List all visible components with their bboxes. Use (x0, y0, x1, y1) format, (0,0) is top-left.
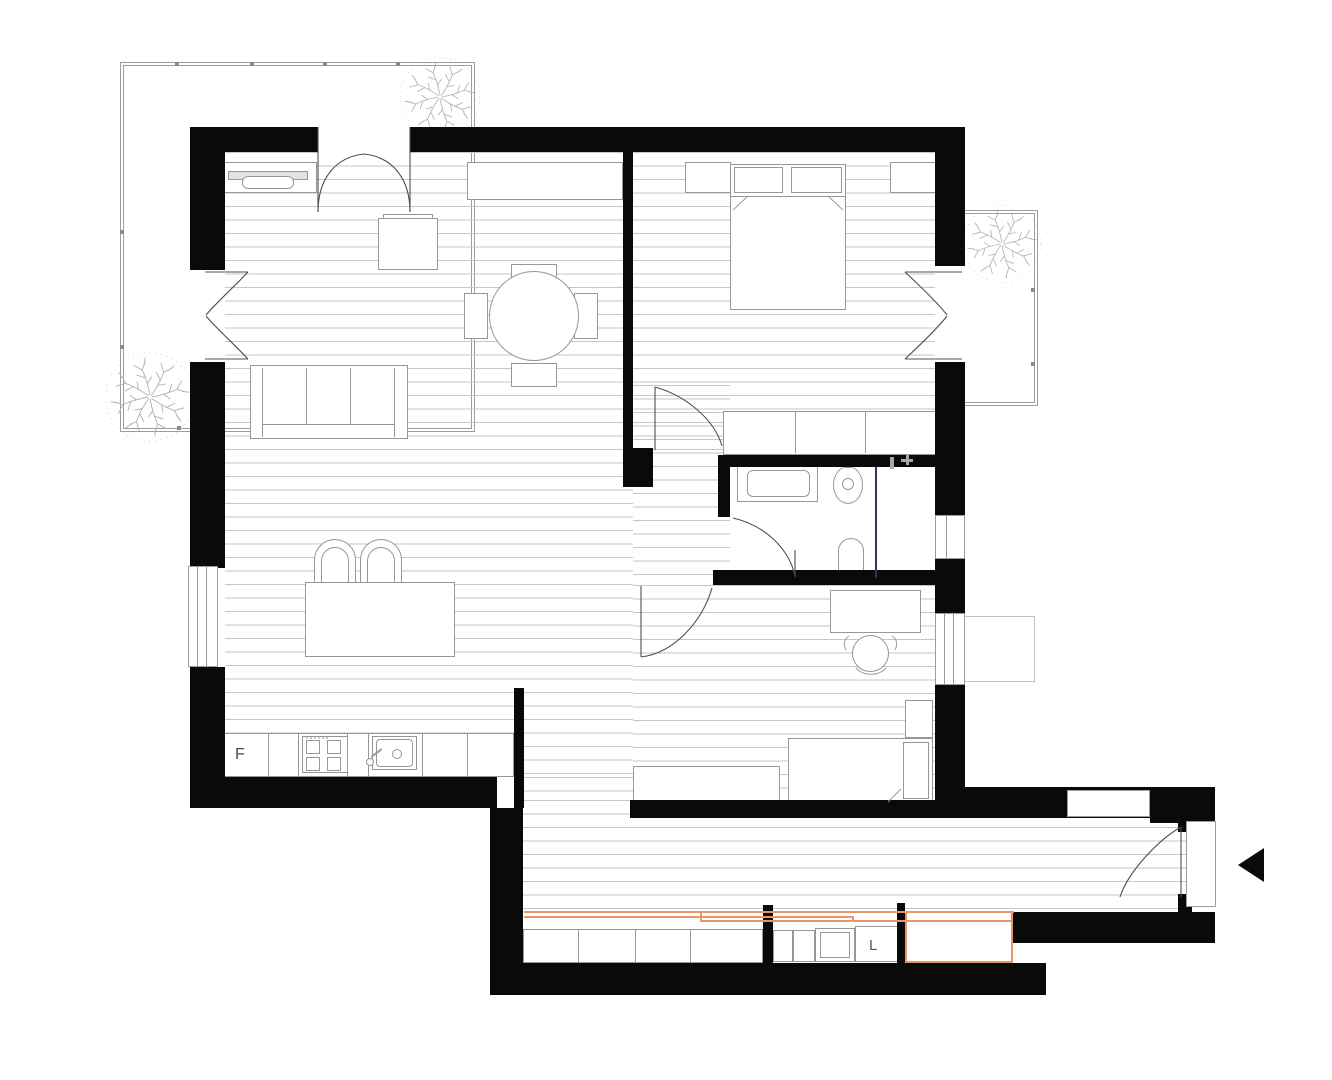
shower-tap (890, 457, 894, 469)
railing-post (1031, 362, 1035, 366)
nightstand (685, 162, 731, 193)
sideboard (467, 162, 623, 200)
wall (1013, 912, 1215, 943)
wall (190, 667, 225, 779)
window (935, 613, 965, 685)
bedside-cabinet (905, 700, 933, 738)
sliding-door-track (524, 916, 854, 918)
counter-divider (368, 734, 369, 776)
stove-burner (327, 740, 341, 754)
tree-icon (100, 347, 200, 447)
floor-passage (523, 777, 633, 802)
window-sill-line (965, 681, 1035, 682)
pillow (734, 167, 783, 193)
utility-cabinet (793, 930, 815, 962)
counter-divider (298, 734, 299, 776)
wall (190, 127, 318, 152)
sink-faucet (366, 758, 374, 766)
dining-table (489, 271, 579, 361)
washbasin-drain (842, 478, 854, 490)
window-glazing (197, 567, 198, 666)
window (935, 515, 965, 559)
wall (190, 777, 497, 808)
railing-post (175, 62, 179, 66)
window-sill-line (965, 616, 1035, 617)
window-glazing (944, 614, 945, 684)
low-cabinet (633, 766, 780, 801)
corridor-wardrobe (523, 929, 763, 963)
window-glazing (953, 614, 954, 684)
wardrobe-divider (690, 930, 691, 962)
sofa-cushion-line (306, 368, 307, 424)
nightstand (890, 162, 936, 193)
sliding-door-stop (852, 916, 854, 922)
stove-burner (306, 740, 320, 754)
sofa-back-line (262, 424, 395, 425)
wall (630, 800, 965, 818)
tree-icon (958, 200, 1046, 288)
desk-chair (852, 635, 889, 672)
counter-divider (467, 734, 468, 776)
dining-chair (464, 293, 488, 339)
counter-divider (422, 734, 423, 776)
bar-stool-seat (367, 547, 395, 583)
wall (490, 963, 1046, 995)
shower-partition (875, 467, 877, 578)
entrance-arrow-icon (1238, 848, 1264, 882)
wall (718, 467, 730, 517)
laundry-cabinet (855, 926, 901, 962)
wardrobe-divider (635, 930, 636, 962)
wall (190, 152, 225, 272)
railing-post (250, 62, 254, 66)
sofa (250, 365, 408, 439)
window-sill-line (1034, 616, 1035, 682)
floor-plan: F L (0, 0, 1332, 1080)
railing-post (323, 62, 327, 66)
window-glazing (946, 516, 947, 558)
sink-drain (392, 749, 402, 759)
shower-head (906, 455, 909, 465)
pillow (791, 167, 842, 193)
wall (935, 152, 965, 273)
wall (490, 808, 523, 968)
sofa-cushion-line (350, 368, 351, 424)
wardrobe-divider (795, 412, 796, 453)
bar-stool-seat (321, 547, 349, 583)
wall (935, 683, 965, 818)
sliding-door-track (524, 911, 1014, 913)
stove-burner (327, 757, 341, 771)
side-table (378, 218, 438, 270)
sliding-door-closet (905, 911, 1013, 963)
entry-threshold (1186, 821, 1216, 907)
sliding-door-track (700, 920, 1013, 922)
mattress-line (731, 196, 845, 197)
counter-divider (268, 734, 269, 776)
radiator-handle (242, 176, 294, 189)
sofa-arm-line (262, 368, 263, 437)
wall-stub (763, 905, 773, 963)
wall (514, 688, 524, 808)
stove-burner (306, 757, 320, 771)
balcony-door-opening (318, 126, 410, 154)
sofa-arm-line (394, 368, 395, 437)
fridge-label: F (235, 747, 245, 763)
balcony-door-opening (935, 266, 965, 362)
entry-niche (1067, 790, 1150, 817)
railing-post (120, 230, 124, 234)
railing-post (1031, 288, 1035, 292)
wardrobe-row (723, 411, 936, 455)
wall (410, 127, 965, 152)
laundry-label: L (869, 938, 877, 953)
washing-machine-drum (820, 932, 850, 958)
sliding-door-stop (700, 912, 702, 921)
vanity-basin (747, 470, 810, 497)
wall (713, 570, 935, 585)
dining-chair (511, 363, 557, 387)
kitchen-island (305, 582, 455, 657)
utility-cabinet (773, 930, 793, 962)
window-glazing (206, 567, 207, 666)
pillow (903, 742, 929, 799)
desk (830, 590, 921, 633)
wardrobe-divider (578, 930, 579, 962)
balcony-door-opening (190, 270, 225, 362)
window (188, 566, 218, 667)
wall (190, 362, 225, 568)
wall (935, 559, 965, 617)
wall (623, 152, 633, 452)
wall-pillar (623, 448, 653, 487)
wardrobe-divider (865, 412, 866, 453)
wall (935, 360, 965, 517)
